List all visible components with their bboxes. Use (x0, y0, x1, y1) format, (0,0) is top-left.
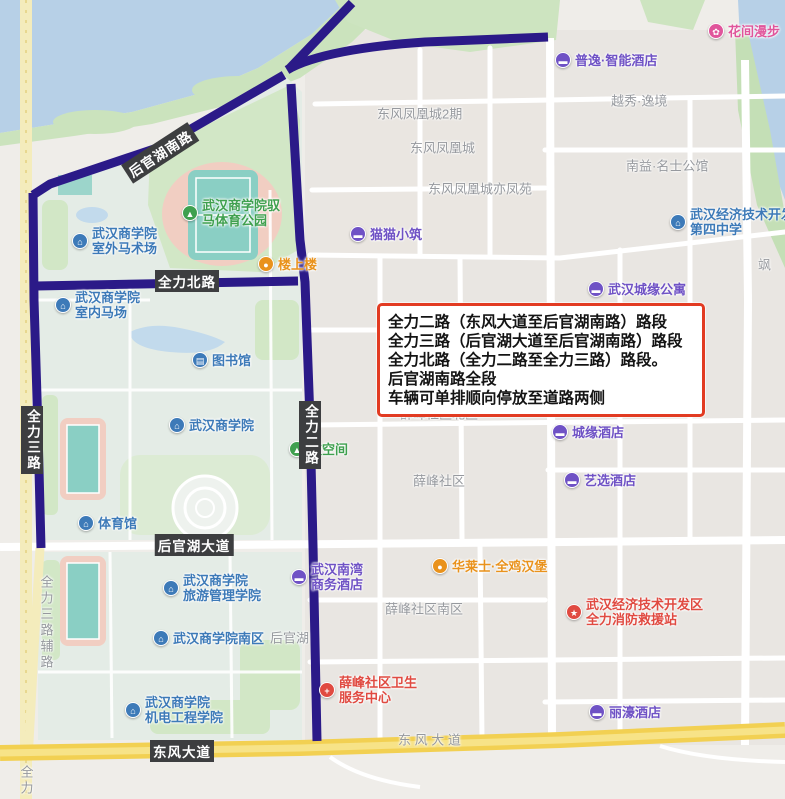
area-label: 东风凤凰城 (410, 138, 475, 157)
poi-label: 普逸·智能酒店 (575, 53, 657, 68)
area-label: 全力三路辅路 (37, 575, 56, 671)
gym-icon: ⌂ (78, 515, 94, 531)
poi-label: 武汉商学院旅游管理学院 (183, 573, 261, 603)
poi-label-line: 第四中学 (690, 222, 785, 237)
poi-label: 武汉城缘公寓 (608, 282, 686, 297)
poi-label: 图书馆 (212, 353, 251, 368)
area-label: 东 风 大 道 (398, 730, 461, 749)
hotel-icon: ▬ (291, 569, 307, 585)
poi-label-line: 城缘酒店 (572, 425, 624, 440)
area-label: 薛峰社区南区 (385, 599, 463, 618)
poi-label: 体育馆 (98, 516, 137, 531)
poi-label-line: 武汉南湾 (311, 562, 363, 577)
poi-marker[interactable]: ▬猫猫小筑 (350, 226, 422, 242)
school-icon: ⌂ (163, 580, 179, 596)
area-label: 南益·名士公馆 (626, 156, 708, 175)
poi-label: 武汉商学院室内马场 (75, 290, 140, 320)
poi-label-line: 马体育公园 (202, 213, 280, 228)
school-icon: ⌂ (670, 214, 686, 230)
school-icon: ⌂ (72, 233, 88, 249)
poi-label: 猫猫小筑 (370, 227, 422, 242)
road-label-houguanhu-ave: 后官湖大道 (155, 534, 234, 556)
poi-label-line: 旅游管理学院 (183, 588, 261, 603)
apartment-icon: ▬ (588, 281, 604, 297)
area-label: 东风凤凰城2期 (377, 104, 462, 123)
library-icon: ▤ (192, 352, 208, 368)
notice-line-2: 全力三路（后官湖大道至后官湖南路）路段 (388, 332, 694, 351)
poi-label-line: 图书馆 (212, 353, 251, 368)
school-icon: ⌂ (55, 297, 71, 313)
school-icon: ⌂ (125, 702, 141, 718)
notice-line-3: 全力北路（全力二路至全力三路）路段。 (388, 351, 694, 370)
poi-label-line: 全力消防救援站 (586, 612, 703, 627)
poi-label-line: 武汉经济技术开发区 (586, 597, 703, 612)
poi-label: 艺选酒店 (584, 473, 636, 488)
poi-label-line: 机电工程学院 (145, 710, 223, 725)
poi-marker[interactable]: ⌂武汉商学院室外马术场 (72, 226, 157, 256)
poi-marker[interactable]: ⌂武汉商学院旅游管理学院 (163, 573, 261, 603)
area-label: 东风凤凰城亦凤苑 (428, 179, 532, 198)
poi-label: 城缘酒店 (572, 425, 624, 440)
poi-label-line: 华莱士·全鸡汉堡 (452, 559, 547, 574)
flower-icon: ✿ (708, 23, 724, 39)
area-label: 后官湖 (270, 628, 309, 647)
area-label: 越秀·逸境 (611, 91, 667, 110)
medical-icon: + (319, 682, 335, 698)
poi-label-line: 武汉商学院驭 (202, 198, 280, 213)
poi-label: 武汉商学院驭马体育公园 (202, 198, 280, 228)
poi-marker[interactable]: ▤图书馆 (192, 352, 251, 368)
poi-label-line: 艺选酒店 (584, 473, 636, 488)
poi-marker[interactable]: ⌂武汉商学院机电工程学院 (125, 695, 223, 725)
hotel-icon: ▬ (589, 704, 605, 720)
poi-label-line: 室内马场 (75, 305, 140, 320)
restaurant-icon: ● (432, 558, 448, 574)
poi-marker[interactable]: ✿花间漫步 (708, 23, 780, 39)
poi-label: 丽濠酒店 (609, 705, 661, 720)
poi-label-line: 猫猫小筑 (370, 227, 422, 242)
poi-label: 花间漫步 (728, 24, 780, 39)
poi-label: 薛峰社区卫生服务中心 (339, 675, 417, 705)
poi-marker[interactable]: ▬武汉城缘公寓 (588, 281, 686, 297)
poi-label-line: 武汉经济技术开发区 (690, 207, 785, 222)
poi-label: 武汉商学院机电工程学院 (145, 695, 223, 725)
notice-line-4: 后官湖南路全段 (388, 370, 694, 389)
poi-marker[interactable]: ●楼上楼 (258, 256, 317, 272)
road-label-quanli-3rd-rd: 全力三路 (21, 406, 43, 474)
poi-label: 华莱士·全鸡汉堡 (452, 559, 547, 574)
restaurant-icon: ● (258, 256, 274, 272)
poi-label-line: 普逸·智能酒店 (575, 53, 657, 68)
poi-marker[interactable]: ⌂武汉商学院室内马场 (55, 290, 140, 320)
fire-station-icon: ★ (566, 604, 582, 620)
poi-marker[interactable]: ⌂武汉经济技术开发区第四中学 (670, 207, 785, 237)
poi-marker[interactable]: +薛峰社区卫生服务中心 (319, 675, 417, 705)
poi-marker[interactable]: ★武汉经济技术开发区全力消防救援站 (566, 597, 703, 627)
poi-label-line: 武汉商学院 (145, 695, 223, 710)
poi-label: 武汉商学院室外马术场 (92, 226, 157, 256)
road-label-quanli-north-rd: 全力北路 (155, 270, 219, 292)
poi-label-line: 室外马术场 (92, 241, 157, 256)
poi-label: 武汉经济技术开发区全力消防救援站 (586, 597, 703, 627)
poi-label-line: 服务中心 (339, 690, 417, 705)
parking-notice-box: 全力二路（东风大道至后官湖南路）路段 全力三路（后官湖大道至后官湖南路）路段 全… (377, 303, 705, 417)
poi-marker[interactable]: ⌂武汉商学院 (169, 417, 254, 433)
poi-label-line: 武汉商学院 (189, 418, 254, 433)
hotel-icon: ▬ (564, 472, 580, 488)
poi-marker[interactable]: ▬城缘酒店 (552, 424, 624, 440)
notice-line-5: 车辆可单排顺向停放至道路两侧 (388, 389, 694, 408)
poi-marker[interactable]: ▬丽濠酒店 (589, 704, 661, 720)
poi-marker[interactable]: ▲武汉商学院驭马体育公园 (182, 198, 280, 228)
school-icon: ⌂ (169, 417, 185, 433)
poi-marker[interactable]: ▬艺选酒店 (564, 472, 636, 488)
poi-label-line: 武汉商学院 (92, 226, 157, 241)
poi-label-line: 商务酒店 (311, 577, 363, 592)
homestay-icon: ▬ (350, 226, 366, 242)
poi-label-line: 丽濠酒店 (609, 705, 661, 720)
area-label: 全力 (17, 765, 36, 797)
poi-marker[interactable]: ⌂体育馆 (78, 515, 137, 531)
poi-label-line: 武汉商学院 (75, 290, 140, 305)
hotel-icon: ▬ (552, 424, 568, 440)
road-label-dongfeng-ave: 东风大道 (150, 740, 214, 762)
poi-label-line: 花间漫步 (728, 24, 780, 39)
school-icon: ⌂ (153, 630, 169, 646)
poi-label-line: 武汉商学院南区 (173, 631, 264, 646)
poi-label: 武汉商学院南区 (173, 631, 264, 646)
poi-label-line: 武汉商学院 (183, 573, 261, 588)
poi-marker[interactable]: ●华莱士·全鸡汉堡 (432, 558, 547, 574)
poi-label-line: 武汉城缘公寓 (608, 282, 686, 297)
notice-line-1: 全力二路（东风大道至后官湖南路）路段 (388, 313, 694, 332)
poi-label-line: 楼上楼 (278, 257, 317, 272)
road-label-quanli-2nd-rd: 全力二路 (299, 401, 321, 469)
poi-marker[interactable]: ▬武汉南湾商务酒店 (291, 562, 363, 592)
poi-marker[interactable]: ⌂武汉商学院南区 (153, 630, 264, 646)
area-label: 飒 (758, 255, 771, 274)
area-label: 薛峰社区 (413, 471, 465, 490)
poi-label-line: 体育馆 (98, 516, 137, 531)
poi-label: 武汉商学院 (189, 418, 254, 433)
poi-marker[interactable]: ▬普逸·智能酒店 (555, 52, 657, 68)
map-canvas[interactable]: 东风凤凰城2期东风凤凰城东风凤凰城亦凤苑越秀·逸境南益·名士公馆薛峰社区北区薛峰… (0, 0, 785, 799)
poi-label: 武汉经济技术开发区第四中学 (690, 207, 785, 237)
poi-label: 武汉南湾商务酒店 (311, 562, 363, 592)
poi-label: 楼上楼 (278, 257, 317, 272)
hotel-icon: ▬ (555, 52, 571, 68)
poi-label-line: 薛峰社区卫生 (339, 675, 417, 690)
park-icon: ▲ (182, 205, 198, 221)
